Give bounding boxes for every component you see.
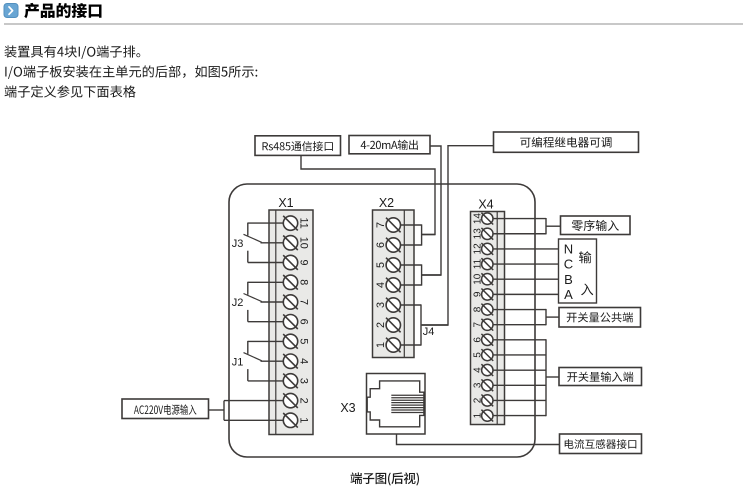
svg-text:X1: X1 bbox=[278, 196, 293, 210]
svg-text:6: 6 bbox=[298, 319, 310, 325]
svg-text:3: 3 bbox=[375, 302, 387, 308]
svg-text:B: B bbox=[564, 272, 573, 287]
svg-text:J2: J2 bbox=[232, 297, 244, 309]
svg-text:9: 9 bbox=[473, 291, 484, 297]
svg-text:6: 6 bbox=[375, 242, 387, 248]
svg-text:2: 2 bbox=[298, 398, 310, 404]
svg-text:11: 11 bbox=[298, 217, 310, 228]
svg-text:8: 8 bbox=[298, 279, 310, 285]
svg-text:J3: J3 bbox=[232, 238, 244, 250]
svg-text:X2: X2 bbox=[379, 196, 394, 210]
svg-text:J1: J1 bbox=[232, 356, 244, 368]
svg-text:6: 6 bbox=[473, 337, 484, 343]
svg-text:N: N bbox=[564, 242, 573, 257]
svg-text:2: 2 bbox=[375, 322, 387, 328]
svg-text:4: 4 bbox=[473, 367, 484, 373]
svg-text:A: A bbox=[564, 287, 573, 302]
svg-text:J4: J4 bbox=[423, 326, 435, 338]
svg-text:10: 10 bbox=[298, 237, 310, 249]
svg-text:14: 14 bbox=[473, 213, 484, 225]
svg-text:11: 11 bbox=[473, 258, 484, 269]
svg-text:12: 12 bbox=[473, 243, 484, 255]
svg-text:5: 5 bbox=[375, 262, 387, 268]
svg-text:9: 9 bbox=[298, 259, 310, 265]
svg-text:4: 4 bbox=[375, 282, 387, 288]
svg-text:1: 1 bbox=[473, 412, 484, 418]
svg-text:5: 5 bbox=[473, 352, 484, 358]
svg-text:C: C bbox=[564, 257, 573, 272]
svg-text:8: 8 bbox=[473, 306, 484, 312]
svg-text:13: 13 bbox=[473, 228, 484, 240]
svg-text:10: 10 bbox=[473, 273, 484, 285]
svg-text:4: 4 bbox=[298, 358, 310, 364]
svg-text:7: 7 bbox=[298, 299, 310, 305]
svg-text:X4: X4 bbox=[478, 198, 493, 212]
svg-text:1: 1 bbox=[298, 417, 310, 423]
svg-text:1: 1 bbox=[375, 342, 387, 348]
svg-text:3: 3 bbox=[473, 382, 484, 388]
svg-text:3: 3 bbox=[298, 378, 310, 384]
svg-text:2: 2 bbox=[473, 397, 484, 403]
svg-text:5: 5 bbox=[298, 338, 310, 344]
svg-text:X3: X3 bbox=[340, 401, 355, 415]
svg-text:7: 7 bbox=[375, 222, 387, 228]
svg-text:7: 7 bbox=[473, 321, 484, 327]
